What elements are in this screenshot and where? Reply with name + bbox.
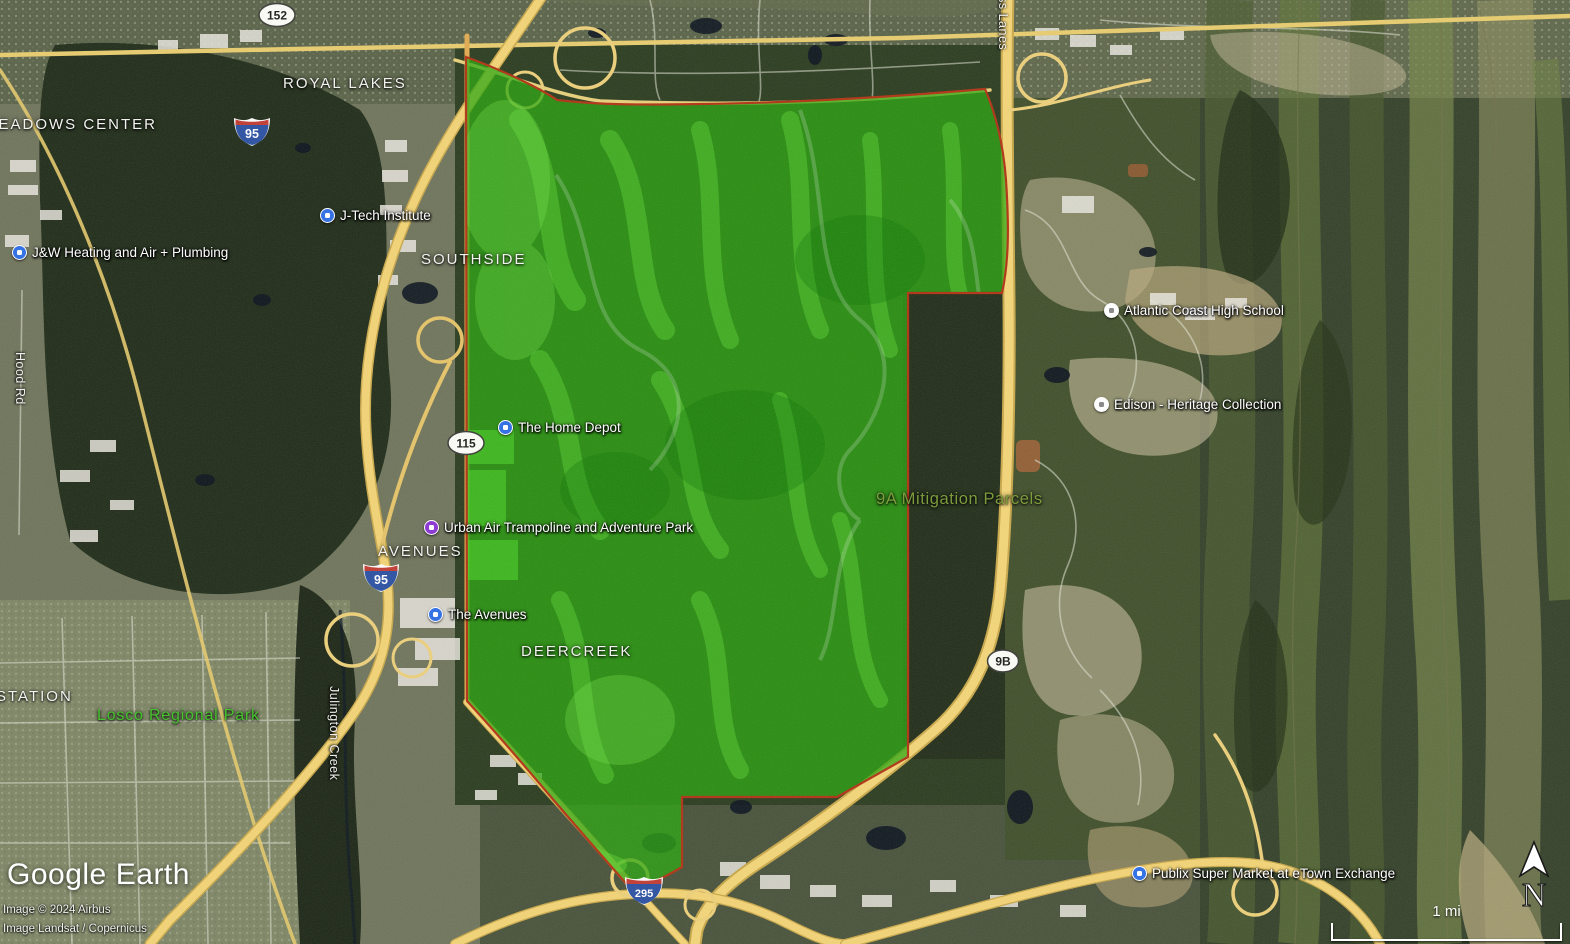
north-compass: N [1506, 838, 1564, 918]
logo-google: Google [7, 858, 107, 891]
poi-label[interactable]: J-Tech Institute [340, 208, 431, 223]
poi-label[interactable]: Atlantic Coast High School [1124, 303, 1284, 318]
logo-earth: Earth [116, 858, 190, 891]
place-label-losco-regional-park: Losco Regional Park [97, 707, 260, 725]
satellite-basemap[interactable]: 152 95 95 115 295 9B [0, 0, 1570, 944]
place-marker-icon[interactable] [428, 607, 443, 622]
poi-edison-heritage-collection[interactable]: Edison - Heritage Collection [1094, 397, 1281, 412]
place-label-southside: SOUTHSIDE [421, 251, 527, 268]
poi-jtech-institute[interactable]: J-Tech Institute [320, 208, 431, 223]
google-earth-map-view: { "brand": {"logo_word1": "Google", "log… [0, 0, 1570, 944]
north-arrow-icon [1520, 842, 1548, 876]
road-label-express-lanes: ress Lanes [996, 0, 1010, 50]
place-marker-icon[interactable] [498, 420, 513, 435]
attribution-line-2: Image Landsat / Copernicus [3, 923, 147, 935]
poi-label[interactable]: J&W Heating and Air + Plumbing [32, 245, 228, 260]
place-marker-icon[interactable] [1104, 303, 1119, 318]
satellite-grain-texture [0, 0, 1570, 944]
place-marker-icon[interactable] [12, 245, 27, 260]
poi-jw-heating[interactable]: J&W Heating and Air + Plumbing [12, 245, 228, 260]
place-label-avenues: AVENUES [378, 543, 463, 560]
overlay-region-label: 9A Mitigation Parcels [876, 490, 1043, 509]
place-label-meadows-center: MEADOWS CENTER [0, 116, 157, 133]
poi-atlantic-coast-high-school[interactable]: Atlantic Coast High School [1104, 303, 1284, 318]
poi-home-depot[interactable]: The Home Depot [498, 420, 621, 435]
poi-label[interactable]: The Avenues [448, 607, 527, 622]
place-marker-icon[interactable] [1094, 397, 1109, 412]
place-marker-icon[interactable] [424, 520, 439, 535]
poi-publix-etown[interactable]: Publix Super Market at eTown Exchange [1132, 866, 1395, 881]
poi-label[interactable]: Edison - Heritage Collection [1114, 397, 1281, 412]
place-marker-icon[interactable] [320, 208, 335, 223]
google-earth-logo: GoogleEarth [7, 858, 190, 892]
place-marker-icon[interactable] [1132, 866, 1147, 881]
road-label-hood-rd: Hood Rd [13, 352, 27, 405]
poi-label[interactable]: Publix Super Market at eTown Exchange [1152, 866, 1395, 881]
north-letter: N [1522, 877, 1547, 914]
scale-bar [1331, 923, 1562, 941]
place-label-deercreek: DEERCREEK [521, 643, 632, 660]
poi-the-avenues[interactable]: The Avenues [428, 607, 527, 622]
poi-label[interactable]: Urban Air Trampoline and Adventure Park [444, 520, 693, 535]
poi-urban-air[interactable]: Urban Air Trampoline and Adventure Park [424, 520, 693, 535]
poi-label[interactable]: The Home Depot [518, 420, 621, 435]
place-label-station: STATION [0, 688, 73, 705]
place-label-royal-lakes: ROYAL LAKES [283, 75, 407, 92]
road-label-julington-creek: Julington Creek [327, 686, 341, 780]
attribution-line-1: Image © 2024 Airbus [3, 904, 111, 916]
